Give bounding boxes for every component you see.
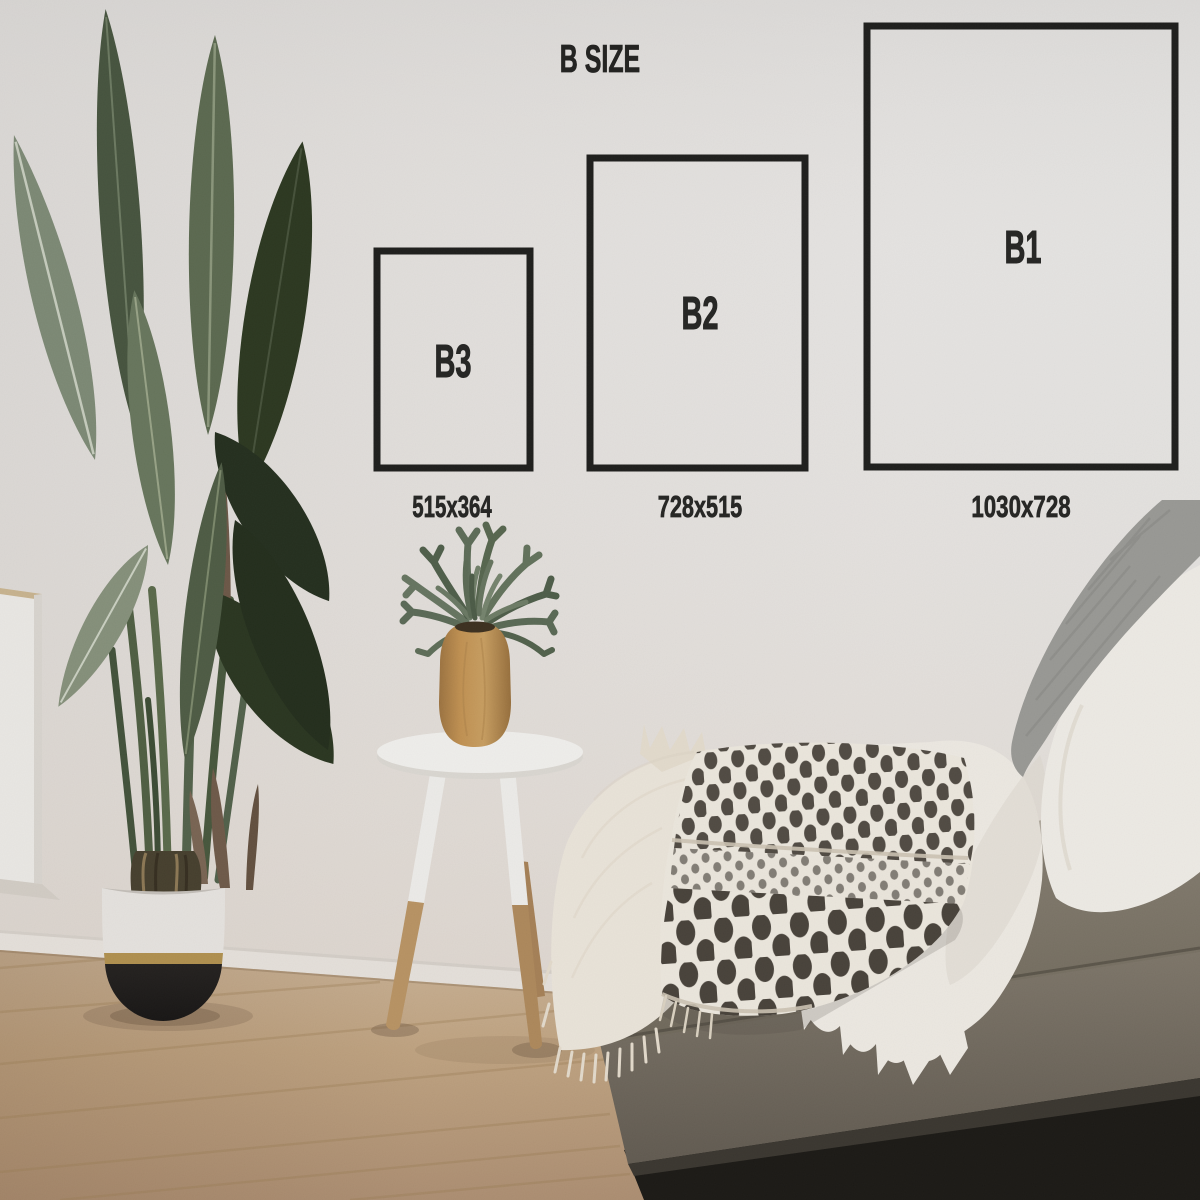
svg-text:B SIZE: B SIZE xyxy=(560,36,640,80)
